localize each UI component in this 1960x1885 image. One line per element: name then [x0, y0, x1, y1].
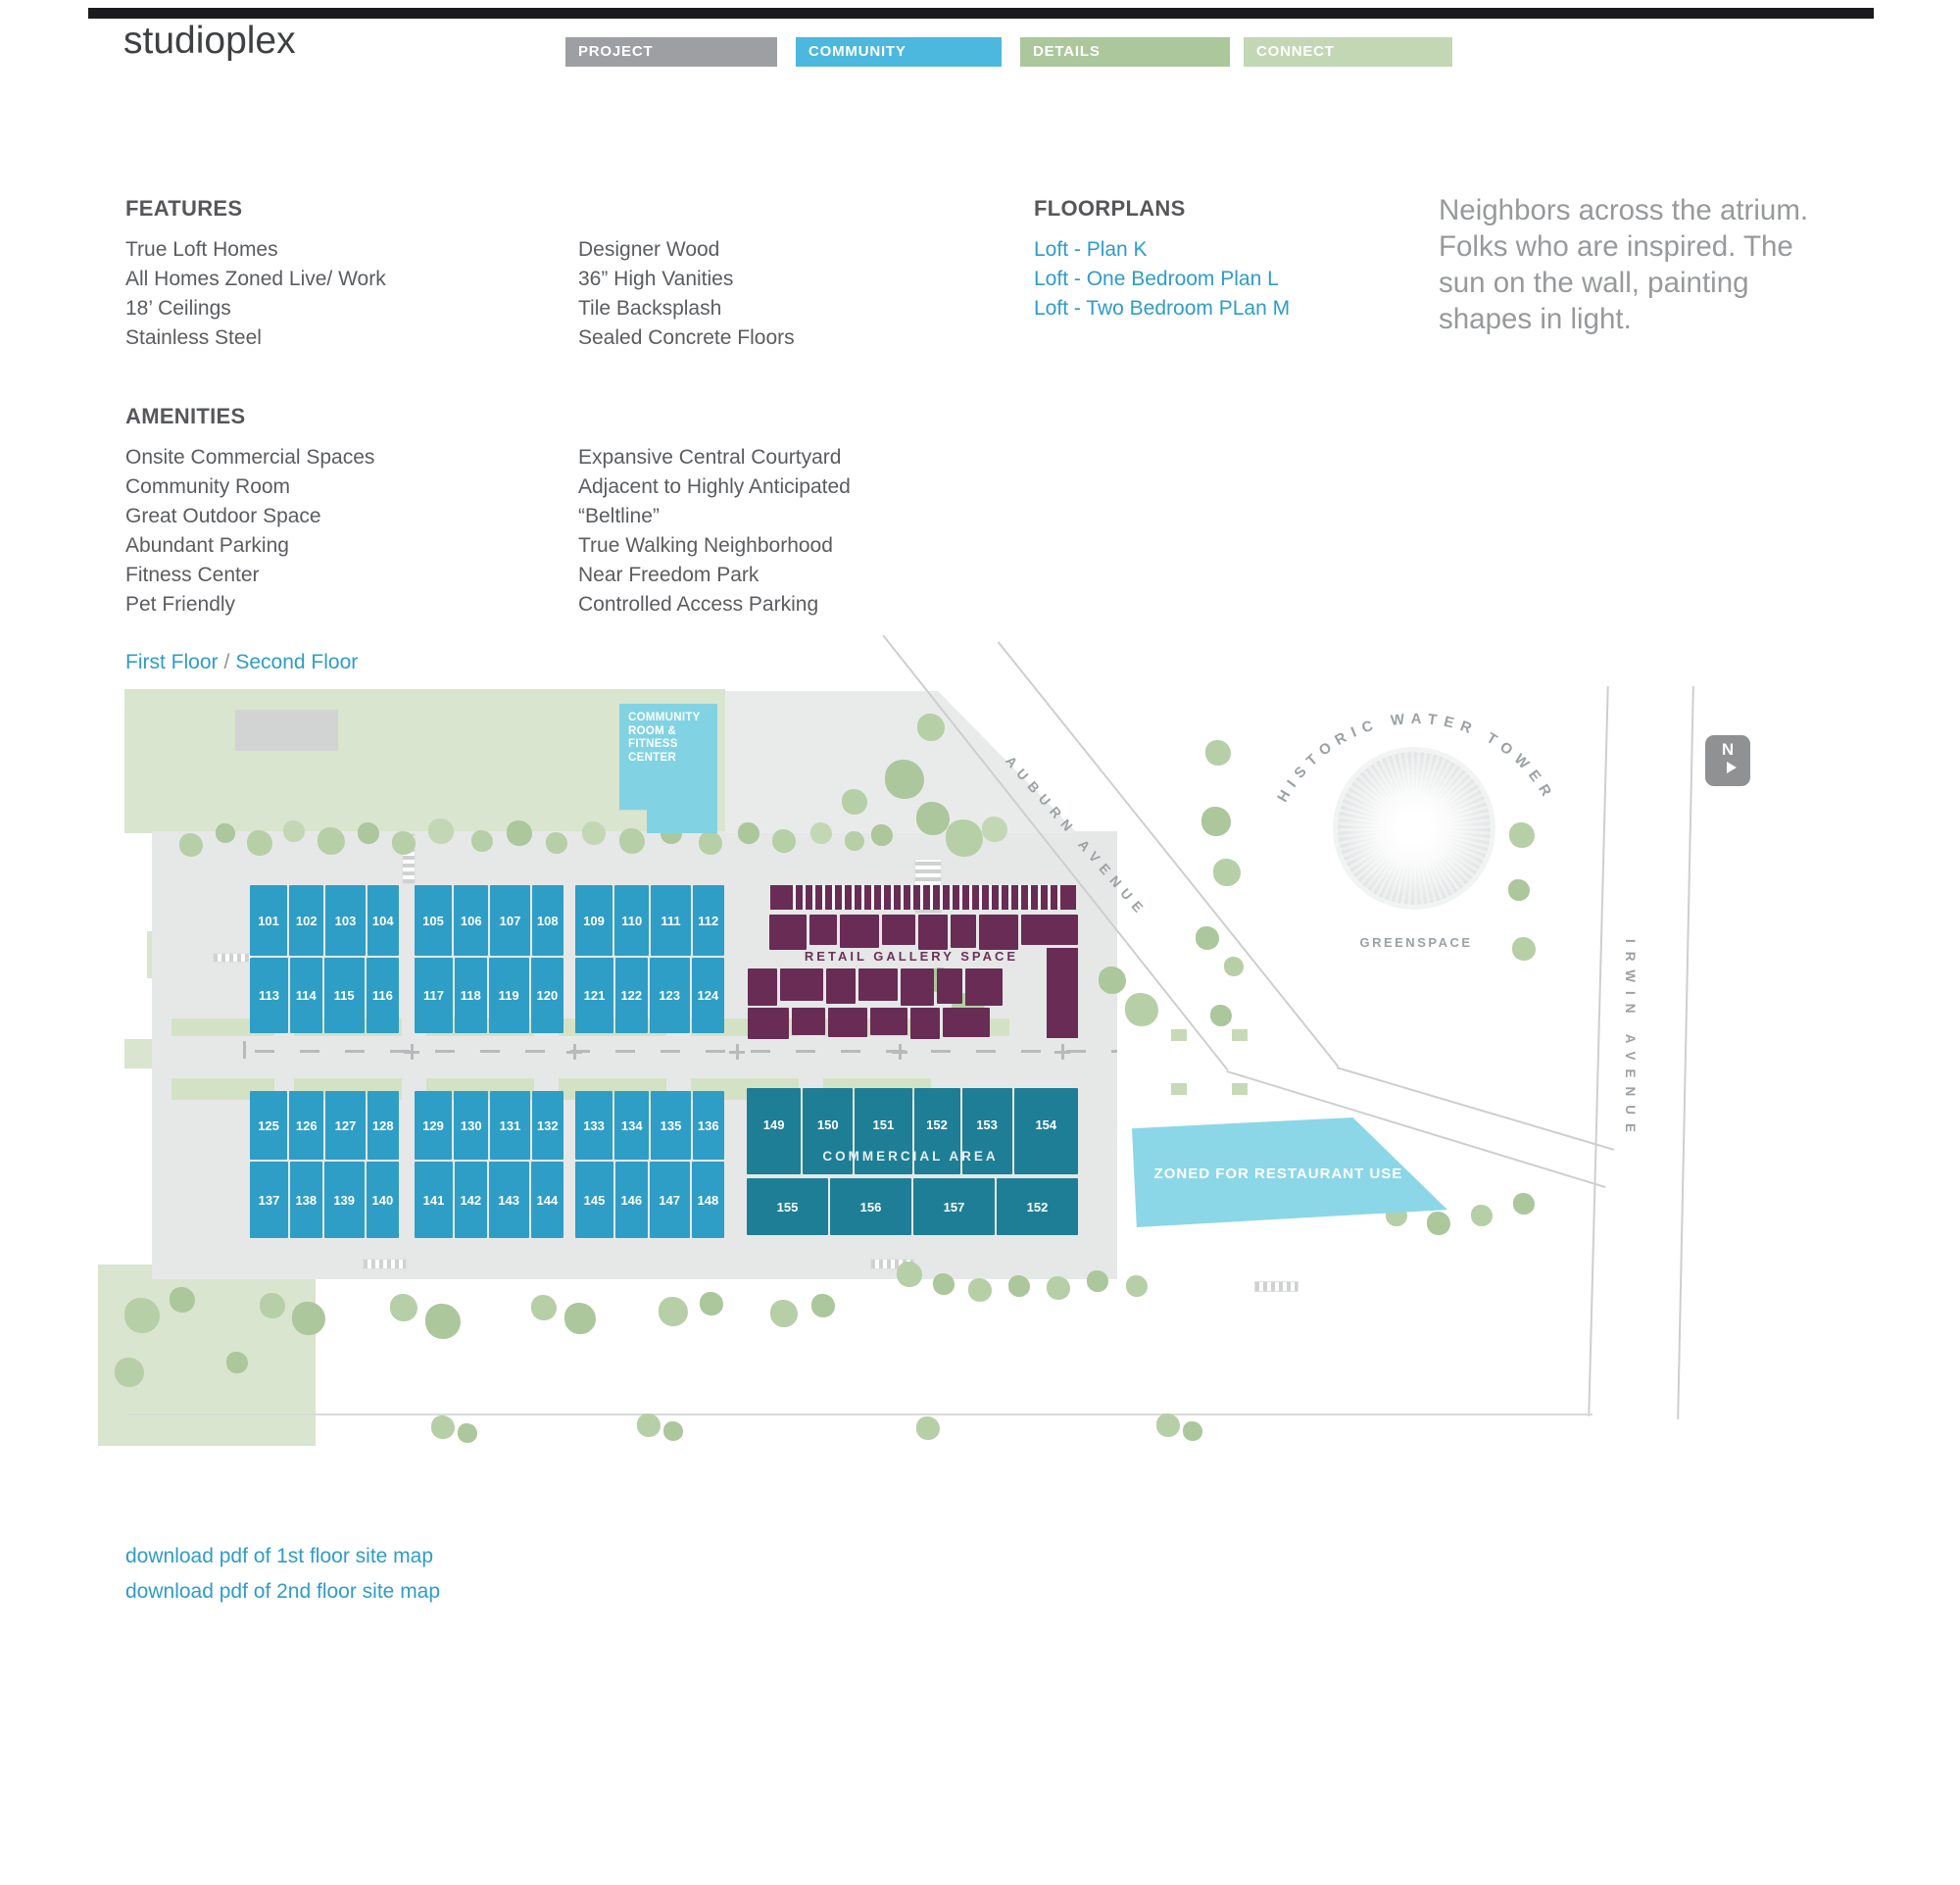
amenities-col1: Onsite Commercial SpacesCommunity RoomGr…: [125, 443, 374, 620]
retail-stall-strip: [770, 885, 1076, 910]
tree-icon: [738, 822, 759, 844]
studioplex-community-page: studioplex PROJECT COMMUNITY DETAILS CON…: [0, 0, 1960, 1885]
tree-icon: [1210, 1005, 1232, 1026]
unit: 129: [415, 1091, 452, 1160]
retail-block: [1047, 948, 1078, 1038]
feature-item: Tile Backsplash: [578, 294, 795, 323]
floor-selector: First Floor/Second Floor: [125, 651, 358, 674]
commercial-unit: 156: [830, 1178, 911, 1235]
planting-strip: [1171, 1029, 1187, 1041]
irwin-road-edge: [1677, 686, 1694, 1419]
retail-block-row: [748, 968, 1010, 1006]
tree-icon: [546, 832, 567, 854]
amenity-item: Community Room: [125, 472, 374, 502]
water-tower-label-arc: HISTORIC WATER TOWER: [1235, 674, 1597, 880]
tree-icon: [1125, 993, 1158, 1026]
tree-icon: [564, 1303, 596, 1334]
floorplans-heading: FLOORPLANS: [1034, 196, 1186, 222]
tree-icon: [700, 1292, 723, 1315]
feature-item: True Loft Homes: [125, 235, 386, 265]
north-arrow-icon: [1727, 762, 1737, 773]
tree-icon: [318, 827, 345, 855]
tree-icon: [772, 829, 796, 853]
tree-icon: [916, 802, 950, 835]
unit: 120: [531, 958, 563, 1033]
planting-strip: [1171, 1083, 1187, 1095]
tree-icon: [699, 831, 722, 855]
tree-icon: [179, 833, 203, 857]
amenity-item: True Walking Neighborhood: [578, 531, 851, 561]
unit: 110: [614, 885, 649, 956]
unit: 130: [454, 1091, 488, 1160]
tree-icon: [933, 1273, 955, 1295]
greenspace-block: [98, 1265, 316, 1446]
unit: 126: [289, 1091, 323, 1160]
loft-block-109-124: 109110111112 121122123124: [575, 885, 724, 1034]
tree-icon: [946, 819, 983, 857]
unit: 133: [575, 1091, 612, 1160]
svg-text:HISTORIC WATER TOWER: HISTORIC WATER TOWER: [1274, 711, 1558, 805]
commercial-unit: 157: [913, 1178, 995, 1235]
tree-icon: [917, 714, 945, 741]
tree-icon: [458, 1423, 477, 1443]
site-map: COMMUNITY ROOM & FITNESS CENTER 10110210…: [98, 686, 1744, 1500]
courtyard-cross: [566, 1044, 582, 1060]
amenities-heading: AMENITIES: [125, 404, 246, 429]
amenity-item: Expansive Central Courtyard: [578, 443, 851, 472]
unit: 109: [575, 885, 612, 956]
unit: 127: [325, 1091, 365, 1160]
tree-icon: [1183, 1421, 1202, 1441]
tree-icon: [897, 1262, 922, 1287]
loft-block-101-116: 101102103104 113114115116: [250, 885, 399, 1034]
amenity-item: Adjacent to Highly Anticipated: [578, 472, 851, 502]
unit: 125: [250, 1091, 287, 1160]
tree-icon: [1471, 1205, 1493, 1226]
tree-icon: [425, 1304, 461, 1339]
tab-community[interactable]: COMMUNITY: [796, 37, 1002, 67]
tree-icon: [170, 1287, 195, 1313]
irwin-avenue-label: IRWIN AVENUE: [1623, 939, 1638, 1141]
amenity-item: Onsite Commercial Spaces: [125, 443, 374, 472]
feature-item: 36” High Vanities: [578, 265, 795, 294]
courtyard-cross: [892, 1044, 907, 1060]
tree-icon: [390, 1294, 417, 1321]
amenity-item: Abundant Parking: [125, 531, 374, 561]
tree-icon: [1047, 1276, 1070, 1300]
amenity-item: Controlled Access Parking: [578, 590, 851, 620]
unit: 107: [490, 885, 529, 956]
tree-icon: [507, 820, 532, 846]
feature-item: Sealed Concrete Floors: [578, 323, 795, 353]
floor-separator: /: [224, 651, 230, 673]
unit: 101: [250, 885, 287, 956]
feature-item: 18’ Ceilings: [125, 294, 386, 323]
unit: 105: [415, 885, 452, 956]
tree-icon: [431, 1415, 455, 1439]
unit: 119: [489, 958, 529, 1033]
unit: 128: [367, 1091, 399, 1160]
unit: 140: [367, 1162, 399, 1238]
unit: 116: [367, 958, 399, 1033]
amenity-item: Pet Friendly: [125, 590, 374, 620]
tree-icon: [216, 823, 235, 843]
loft-block-129-144: 129130131132 141142143144: [415, 1091, 563, 1240]
tree-icon: [1508, 879, 1530, 901]
unit: 146: [615, 1162, 648, 1238]
download-1st-floor-link[interactable]: download pdf of 1st floor site map: [125, 1539, 440, 1574]
tree-icon: [1126, 1275, 1148, 1297]
north-indicator: N: [1705, 735, 1750, 786]
tree-icon: [247, 830, 272, 856]
tree-icon: [358, 822, 379, 844]
download-2nd-floor-link[interactable]: download pdf of 2nd floor site map: [125, 1574, 440, 1610]
commercial-area-label: COMMERCIAL AREA: [753, 1149, 1068, 1164]
adjacent-building: [235, 710, 338, 751]
commercial-unit: 155: [747, 1178, 828, 1235]
unit: 148: [692, 1162, 724, 1238]
unit: 104: [367, 885, 399, 956]
download-links: download pdf of 1st floor site map downl…: [125, 1539, 440, 1610]
tree-icon: [531, 1295, 557, 1320]
site-logo: studioplex: [123, 20, 296, 63]
floorplan-link[interactable]: Loft - Plan K: [1034, 235, 1290, 265]
restaurant-zone: ZONED FOR RESTAURANT USE: [1132, 1117, 1447, 1227]
courtyard-marker: [243, 1041, 246, 1059]
tree-icon: [1512, 937, 1536, 961]
unit: 123: [650, 958, 690, 1033]
tree-icon: [1008, 1275, 1030, 1297]
planting-strip: [1232, 1029, 1248, 1041]
tree-icon: [471, 830, 493, 852]
tree-icon: [842, 789, 867, 815]
courtyard-centerline: [255, 1050, 1117, 1053]
unit: 124: [692, 958, 724, 1033]
unit: 122: [615, 958, 648, 1033]
unit: 111: [651, 885, 690, 956]
unit: 106: [454, 885, 488, 956]
top-accent-bar: [88, 8, 1874, 19]
unit: 132: [532, 1091, 563, 1160]
sidewalk-path: [127, 1414, 1592, 1415]
tab-project[interactable]: PROJECT: [565, 37, 777, 67]
retail-block-row: [748, 1008, 1001, 1039]
tab-connect[interactable]: CONNECT: [1244, 37, 1452, 67]
courtyard-cross: [1054, 1044, 1070, 1060]
unit: 117: [415, 958, 453, 1033]
tree-icon: [260, 1293, 285, 1318]
loft-block-125-140: 125126127128 137138139140: [250, 1091, 399, 1240]
retail-block-row: [769, 915, 1081, 950]
commercial-unit: 152: [997, 1178, 1078, 1235]
unit: 145: [575, 1162, 613, 1238]
tab-details[interactable]: DETAILS: [1020, 37, 1230, 67]
tree-icon: [810, 822, 832, 844]
tree-icon: [982, 817, 1007, 842]
tree-icon: [637, 1414, 661, 1437]
tree-icon: [1196, 926, 1219, 950]
features-heading: FEATURES: [125, 196, 242, 222]
tree-icon: [663, 1421, 683, 1441]
amenity-item: “Beltline”: [578, 502, 851, 531]
features-col1: True Loft HomesAll Homes Zoned Live/ Wor…: [125, 235, 386, 353]
feature-item: All Homes Zoned Live/ Work: [125, 265, 386, 294]
unit: 141: [415, 1162, 453, 1238]
floorplan-link[interactable]: Loft - Two Bedroom PLan M: [1034, 294, 1290, 323]
tree-icon: [1513, 1193, 1535, 1215]
tree-icon: [226, 1352, 248, 1373]
tree-icon: [392, 831, 416, 855]
tree-icon: [845, 831, 864, 851]
tree-icon: [292, 1302, 325, 1335]
unit: 142: [455, 1162, 487, 1238]
restaurant-zone-label: ZONED FOR RESTAURANT USE: [1154, 1166, 1403, 1182]
unit: 103: [325, 885, 365, 956]
greenspace-label: GREENSPACE: [1343, 935, 1490, 950]
courtyard-cross: [729, 1044, 745, 1060]
tree-icon: [659, 1297, 688, 1326]
unit: 118: [455, 958, 487, 1033]
floorplan-links: Loft - Plan KLoft - One Bedroom Plan LLo…: [1034, 235, 1290, 323]
unit: 137: [250, 1162, 288, 1238]
north-letter: N: [1705, 740, 1750, 760]
tree-icon: [283, 820, 305, 842]
unit: 102: [289, 885, 323, 956]
unit: 131: [490, 1091, 529, 1160]
unit: 135: [651, 1091, 690, 1160]
tree-icon: [968, 1278, 992, 1302]
unit: 108: [532, 885, 563, 956]
unit: 143: [489, 1162, 529, 1238]
crosswalk-hatch: [363, 1259, 407, 1269]
second-floor-link[interactable]: Second Floor: [235, 651, 358, 673]
tree-icon: [1205, 740, 1231, 766]
commercial-area-block: 149150151152153154 COMMERCIAL AREA 15515…: [747, 1088, 1078, 1243]
unit: 136: [693, 1091, 724, 1160]
unit: 114: [290, 958, 322, 1033]
unit: 139: [324, 1162, 365, 1238]
tree-icon: [1224, 957, 1244, 976]
planting-strip: [1232, 1083, 1248, 1095]
crosswalk-hatch: [1254, 1281, 1298, 1292]
tree-icon: [1427, 1212, 1450, 1235]
first-floor-link[interactable]: First Floor: [125, 651, 219, 673]
floorplan-link[interactable]: Loft - One Bedroom Plan L: [1034, 265, 1290, 294]
features-col2: Designer Wood36” High VanitiesTile Backs…: [578, 235, 795, 353]
feature-item: Designer Wood: [578, 235, 795, 265]
unit: 144: [531, 1162, 563, 1238]
tree-icon: [885, 760, 924, 799]
loft-block-133-148: 133134135136 145146147148: [575, 1091, 724, 1240]
road-edge: [1337, 1067, 1614, 1151]
amenities-col2: Expansive Central CourtyardAdjacent to H…: [578, 443, 851, 620]
community-room-label: COMMUNITY ROOM & FITNESS CENTER: [628, 712, 709, 765]
amenity-item: Great Outdoor Space: [125, 502, 374, 531]
marketing-quote: Neighbors across the atrium. Folks who a…: [1439, 192, 1829, 337]
tree-icon: [871, 824, 893, 846]
unit: 147: [650, 1162, 690, 1238]
tree-icon: [1099, 967, 1126, 994]
courtyard-cross: [404, 1044, 419, 1060]
tree-icon: [916, 1416, 940, 1440]
tree-icon: [1087, 1270, 1108, 1292]
tree-icon: [1201, 807, 1231, 836]
feature-item: Stainless Steel: [125, 323, 386, 353]
retail-gallery-label: RETAIL GALLERY SPACE: [774, 949, 1049, 964]
tree-icon: [115, 1358, 144, 1387]
tree-icon: [428, 818, 454, 844]
unit: 138: [290, 1162, 322, 1238]
tree-icon: [124, 1298, 160, 1333]
amenity-item: Near Freedom Park: [578, 561, 851, 590]
tree-icon: [619, 828, 645, 854]
stair-hatch: [213, 953, 254, 963]
unit: 121: [575, 958, 613, 1033]
tree-icon: [1156, 1414, 1180, 1437]
unit: 113: [250, 958, 288, 1033]
amenity-item: Fitness Center: [125, 561, 374, 590]
tree-icon: [582, 821, 606, 845]
loft-block-105-120: 105106107108 117118119120: [415, 885, 563, 1034]
unit: 134: [614, 1091, 649, 1160]
tree-icon: [770, 1300, 798, 1327]
unit: 115: [324, 958, 365, 1033]
unit: 112: [693, 885, 724, 956]
tree-icon: [811, 1294, 835, 1317]
